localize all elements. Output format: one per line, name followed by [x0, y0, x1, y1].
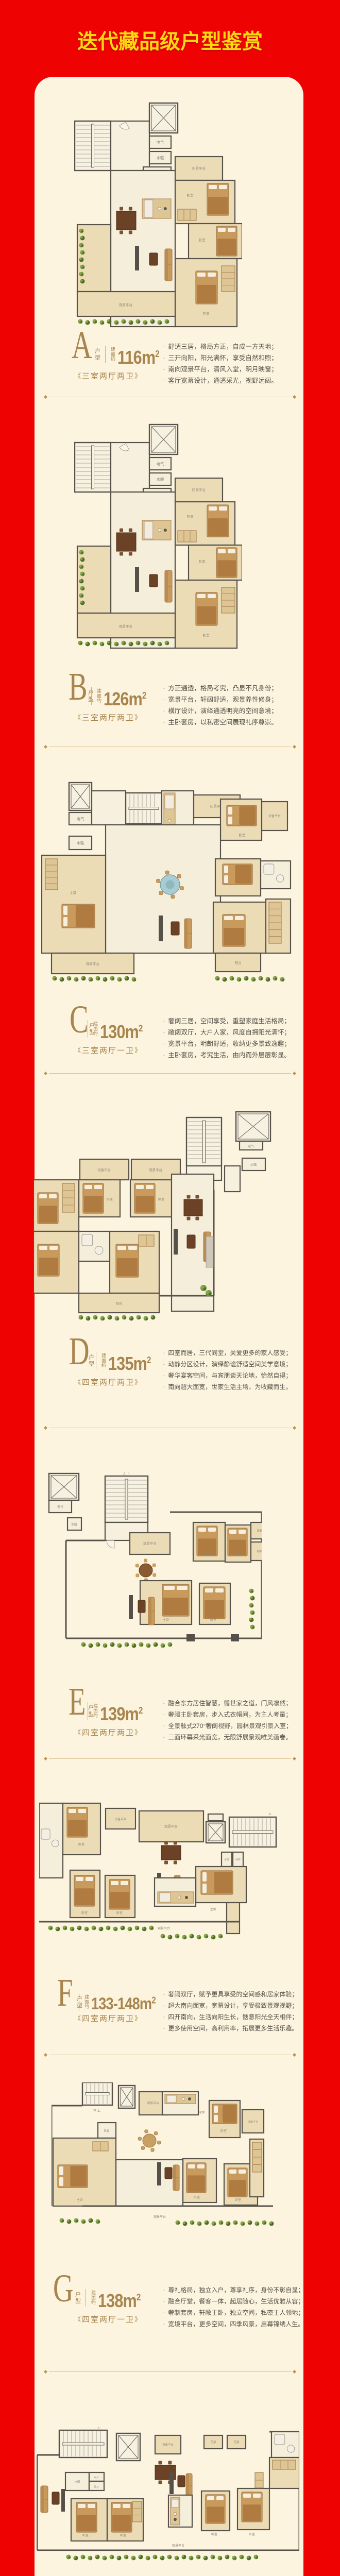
svg-text:卧室: 卧室 [81, 1911, 88, 1915]
svg-text:电井: 电井 [94, 2476, 99, 2480]
svg-text:卧室: 卧室 [199, 238, 206, 242]
svg-text:水暖: 水暖 [157, 477, 164, 482]
svg-text:卧室: 卧室 [194, 2195, 200, 2199]
svg-text:卧室: 卧室 [249, 2532, 255, 2536]
svg-text:风井: 风井 [104, 2129, 110, 2133]
svg-text:观景平台: 观景平台 [164, 1824, 178, 1828]
svg-text:水暖: 水暖 [71, 1522, 77, 1527]
svg-text:卧室: 卧室 [220, 2129, 227, 2133]
svg-text:阳台: 阳台 [116, 1301, 123, 1306]
svg-text:观景平台: 观景平台 [119, 624, 132, 629]
svg-text:卧室: 卧室 [78, 1842, 84, 1846]
svg-text:主卧: 主卧 [163, 1618, 169, 1622]
svg-text:卧室: 卧室 [203, 633, 210, 637]
svg-text:风井: 风井 [235, 1858, 241, 1861]
svg-text:主卧: 主卧 [210, 1907, 216, 1911]
svg-text:花架: 花架 [210, 2440, 216, 2444]
svg-text:花架: 花架 [233, 2440, 240, 2444]
svg-text:阳台: 阳台 [257, 1549, 262, 1553]
svg-text:卧室: 卧室 [120, 2533, 126, 2537]
svg-text:水暖: 水暖 [157, 155, 164, 160]
svg-text:设备平台: 设备平台 [97, 1167, 111, 1172]
svg-text:设备: 设备 [257, 1529, 262, 1533]
svg-text:卧室: 卧室 [107, 1197, 113, 1201]
svg-text:卧室: 卧室 [187, 514, 194, 519]
svg-text:观景平台: 观景平台 [172, 2544, 184, 2548]
svg-text:卧室: 卧室 [235, 2198, 241, 2202]
svg-text:设备平台: 设备平台 [268, 814, 281, 818]
svg-text:上: 上 [97, 2426, 100, 2430]
svg-text:设备平台: 设备平台 [114, 1817, 126, 1821]
svg-text:水暖: 水暖 [224, 1858, 229, 1861]
svg-text:上: 上 [268, 1812, 271, 1816]
svg-text:主卧: 主卧 [70, 890, 77, 895]
svg-text:卧室: 卧室 [239, 833, 246, 837]
svg-text:卧室: 卧室 [211, 2532, 217, 2536]
svg-text:观景平台: 观景平台 [119, 302, 132, 307]
svg-text:卧室: 卧室 [234, 1553, 240, 1557]
svg-text:卧室: 卧室 [203, 311, 210, 316]
svg-text:电气: 电气 [57, 1505, 63, 1509]
svg-text:卧室: 卧室 [187, 193, 194, 197]
svg-text:下 上: 下 上 [93, 2109, 100, 2113]
svg-text:主卧: 主卧 [77, 2198, 83, 2202]
svg-text:电气: 电气 [157, 461, 164, 466]
svg-text:电气: 电气 [77, 816, 84, 821]
svg-text:卧室: 卧室 [205, 1552, 211, 1556]
svg-text:设备平台: 设备平台 [248, 2120, 259, 2124]
svg-text:观景平台: 观景平台 [147, 2101, 159, 2105]
svg-text:卧室: 卧室 [116, 1911, 123, 1915]
svg-text:电气: 电气 [157, 140, 164, 145]
svg-text:上 下: 上 下 [123, 1472, 130, 1476]
svg-text:卧室: 卧室 [158, 1197, 164, 1201]
svg-text:电气: 电气 [248, 1144, 254, 1148]
svg-text:水箱: 水箱 [250, 1163, 257, 1167]
svg-text:观景平台: 观景平台 [158, 1926, 170, 1930]
svg-text:观景平台: 观景平台 [86, 961, 99, 966]
svg-text:卧室: 卧室 [199, 559, 206, 564]
svg-text:卧室: 卧室 [82, 2533, 89, 2537]
svg-text:阳景平台: 阳景平台 [149, 1167, 162, 1172]
svg-text:设备平台: 设备平台 [162, 2443, 174, 2447]
svg-text:观景平台: 观景平台 [143, 1541, 157, 1546]
svg-text:阳景平台: 阳景平台 [192, 487, 206, 492]
svg-text:风井: 风井 [94, 2485, 99, 2489]
svg-text:阳景平台: 阳景平台 [192, 166, 206, 171]
svg-text:水暖: 水暖 [77, 840, 84, 845]
svg-text:观景平台: 观景平台 [154, 2215, 166, 2219]
svg-text:阳台: 阳台 [235, 960, 242, 965]
svg-text:花架: 花架 [199, 2110, 205, 2114]
svg-text:卧室: 卧室 [210, 1618, 216, 1622]
svg-text:水暖: 水暖 [74, 2480, 80, 2484]
